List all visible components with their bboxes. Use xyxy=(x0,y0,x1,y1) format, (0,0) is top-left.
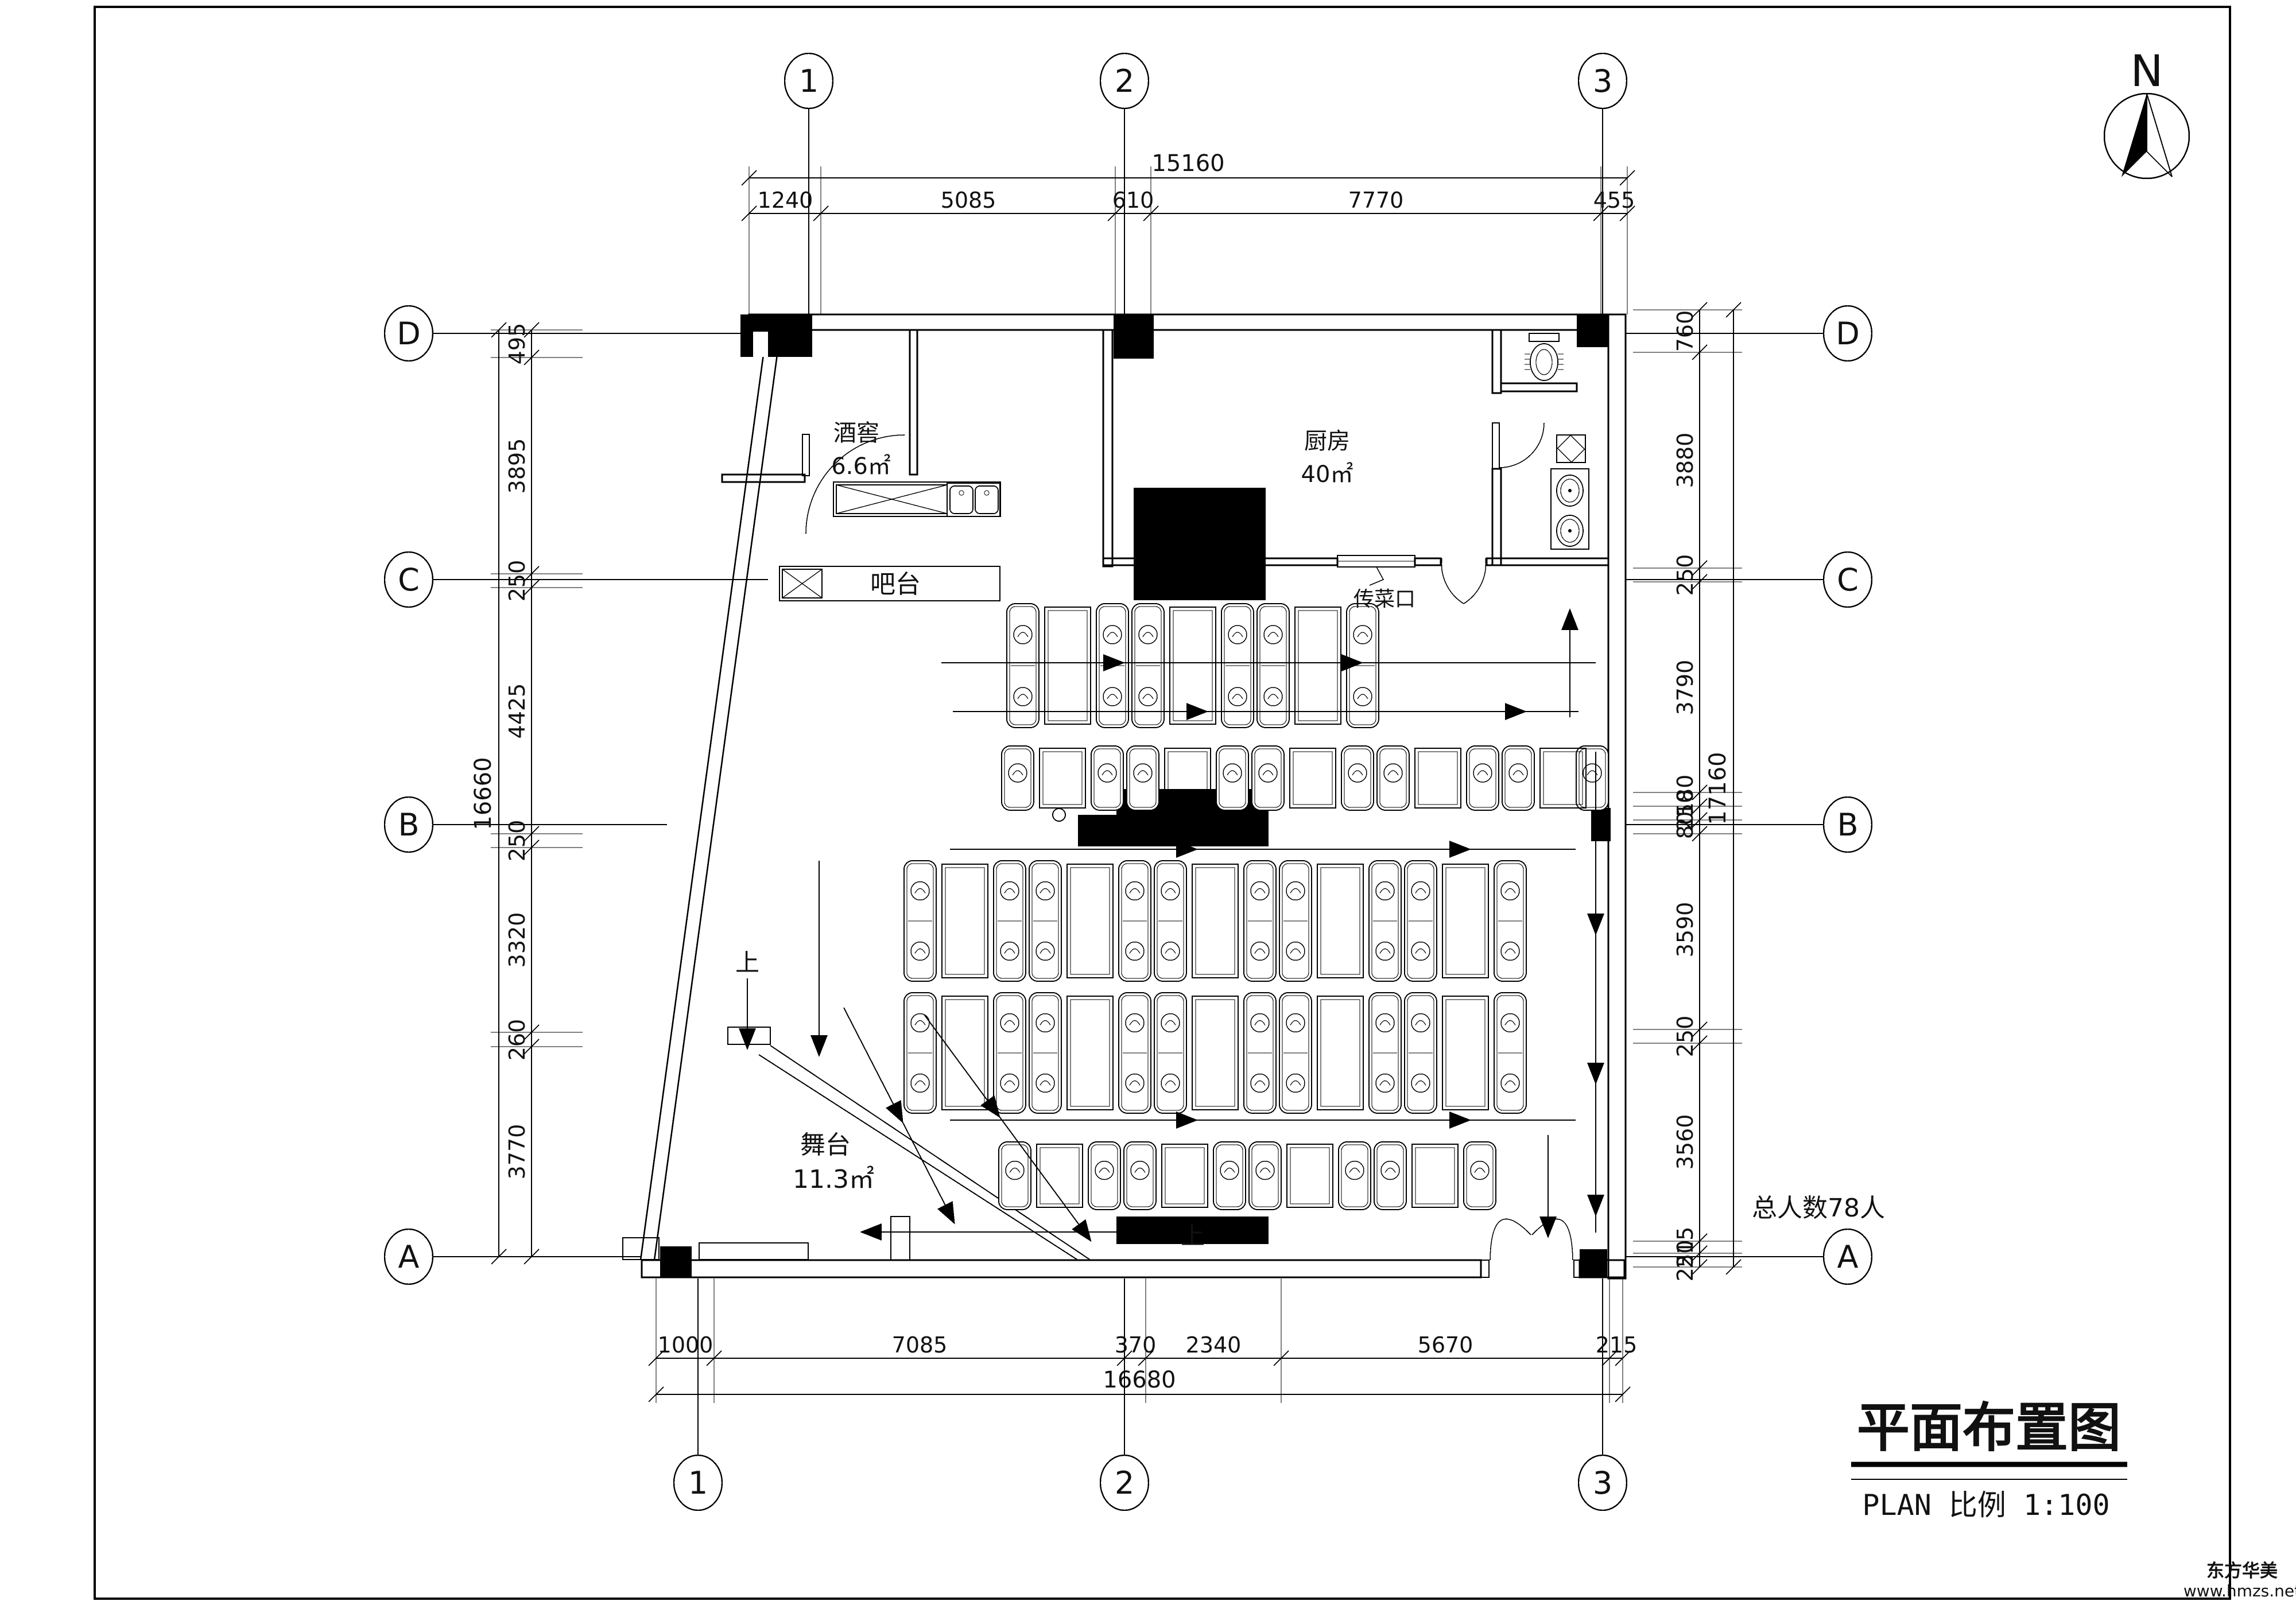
grid-bubble-C: C xyxy=(1824,552,1872,607)
room-label: 酒窖 xyxy=(833,420,879,446)
svg-text:C: C xyxy=(398,562,420,598)
room-label: 上 xyxy=(1181,1222,1205,1250)
room-label: 传菜口 xyxy=(1353,588,1415,611)
grid-bubble-A: A xyxy=(385,1229,433,1284)
svg-text:455: 455 xyxy=(1593,188,1635,213)
svg-text:1240: 1240 xyxy=(758,188,813,213)
svg-text:3320: 3320 xyxy=(505,912,530,968)
svg-text:1: 1 xyxy=(799,63,819,99)
svg-text:7085: 7085 xyxy=(892,1332,948,1358)
svg-text:16660: 16660 xyxy=(470,757,497,830)
svg-text:80: 80 xyxy=(1673,811,1698,839)
room-label: 厨房 xyxy=(1304,428,1350,454)
svg-text:4425: 4425 xyxy=(505,683,530,739)
watermark: 东方华美 www.hmzs.net xyxy=(2183,1561,2296,1600)
svg-text:3790: 3790 xyxy=(1673,660,1698,716)
room-label: 总人数78人 xyxy=(1752,1194,1885,1223)
svg-text:A: A xyxy=(398,1239,420,1275)
grid-bubble-B: B xyxy=(1824,797,1872,852)
svg-text:3: 3 xyxy=(1593,1465,1612,1501)
svg-text:1000: 1000 xyxy=(658,1332,713,1358)
room-label: 6.6㎡ xyxy=(831,453,891,480)
svg-text:3: 3 xyxy=(1593,63,1612,99)
drawing-sheet: 123123DCBADCBA15160124050856107770455166… xyxy=(0,0,2296,1607)
svg-text:C: C xyxy=(1837,562,1859,598)
svg-text:A: A xyxy=(1837,1239,1859,1275)
svg-text:2: 2 xyxy=(1115,1465,1134,1501)
room-label: 上 xyxy=(735,949,759,977)
svg-text:250: 250 xyxy=(1673,554,1698,596)
svg-text:370: 370 xyxy=(1115,1332,1157,1358)
svg-text:2340: 2340 xyxy=(1186,1332,1242,1358)
svg-text:D: D xyxy=(397,316,421,352)
svg-text:3880: 3880 xyxy=(1673,433,1698,488)
svg-text:5670: 5670 xyxy=(1418,1332,1473,1358)
svg-text:610: 610 xyxy=(1112,188,1154,213)
svg-text:3770: 3770 xyxy=(505,1124,530,1180)
furniture-layer xyxy=(904,604,1608,1210)
svg-text:17160: 17160 xyxy=(1705,752,1731,825)
svg-text:215: 215 xyxy=(1596,1332,1638,1358)
grid-bubble-2: 2 xyxy=(1100,53,1149,108)
booth-row xyxy=(999,1142,1496,1210)
svg-text:3590: 3590 xyxy=(1673,902,1698,958)
room-label: 40㎡ xyxy=(1301,461,1353,488)
svg-text:2: 2 xyxy=(1115,63,1134,99)
grid-bubble-2: 2 xyxy=(1100,1455,1149,1510)
svg-text:1: 1 xyxy=(688,1465,708,1501)
svg-text:B: B xyxy=(1837,807,1858,843)
svg-text:495: 495 xyxy=(505,323,530,365)
svg-text:260: 260 xyxy=(505,1019,530,1061)
drawing-title: 平面布置图 xyxy=(1857,1397,2121,1459)
grid-bubble-C: C xyxy=(385,552,433,607)
svg-text:B: B xyxy=(398,807,419,843)
labels-layer: 酒窖6.6㎡厨房40㎡吧台传菜口舞台11.3㎡总人数78人上上 xyxy=(735,420,1885,1250)
grid-bubble-1: 1 xyxy=(674,1455,722,1510)
grid-bubble-D: D xyxy=(385,306,433,361)
title-block: 平面布置图 PLAN 比例 1:100 xyxy=(1851,1397,2127,1522)
svg-text:250: 250 xyxy=(505,820,530,862)
floor-plan-svg: 123123DCBADCBA15160124050856107770455166… xyxy=(0,0,2296,1607)
north-label: N xyxy=(2131,45,2163,96)
svg-text:760: 760 xyxy=(1673,310,1698,352)
north-arrow: N xyxy=(2104,45,2189,178)
grid-bubble-B: B xyxy=(385,797,433,852)
svg-text:5085: 5085 xyxy=(941,188,996,213)
room-label: 吧台 xyxy=(870,570,921,599)
drawing-scale: PLAN 比例 1:100 xyxy=(1862,1488,2109,1522)
room-label: 舞台 xyxy=(800,1130,851,1160)
svg-text:3895: 3895 xyxy=(505,438,530,494)
booth-row xyxy=(904,861,1526,981)
watermark-name: 东方华美 xyxy=(2206,1561,2278,1581)
grid-bubble-3: 3 xyxy=(1578,53,1627,108)
grid-bubble-1: 1 xyxy=(785,53,833,108)
room-label: 11.3㎡ xyxy=(793,1165,874,1194)
grid-bubble-3: 3 xyxy=(1578,1455,1627,1510)
grid-bubble-A: A xyxy=(1824,1229,1872,1284)
north-needle-outline xyxy=(2147,94,2172,177)
svg-text:15160: 15160 xyxy=(1151,150,1224,177)
watermark-url: www.hmzs.net xyxy=(2183,1581,2296,1600)
svg-text:7770: 7770 xyxy=(1348,188,1404,213)
svg-text:250: 250 xyxy=(1673,1016,1698,1058)
svg-text:3560: 3560 xyxy=(1673,1114,1698,1170)
svg-text:16680: 16680 xyxy=(1103,1367,1176,1393)
booth-row xyxy=(904,993,1526,1113)
svg-text:250: 250 xyxy=(505,560,530,602)
svg-text:250: 250 xyxy=(1673,1240,1698,1282)
booth-row xyxy=(1002,746,1608,810)
grid-bubble-D: D xyxy=(1824,306,1872,361)
svg-text:D: D xyxy=(1836,316,1860,352)
north-needle-solid xyxy=(2122,94,2147,177)
